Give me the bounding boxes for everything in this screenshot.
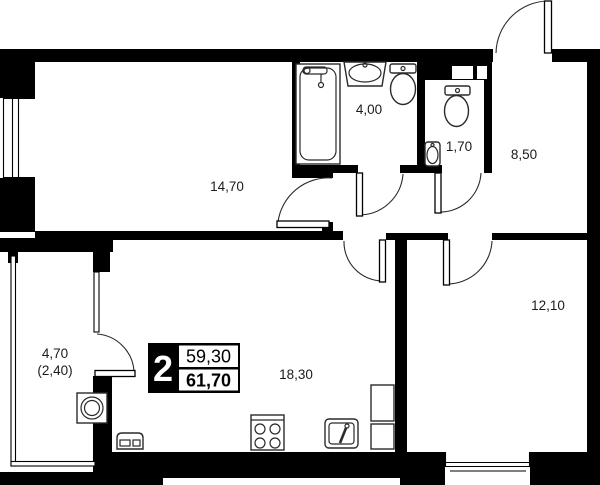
wc-toilet-icon xyxy=(445,86,471,127)
balcony-door xyxy=(95,334,135,377)
washing-machine-icon xyxy=(77,393,107,423)
total-area-label: 61,70 xyxy=(186,371,231,391)
entrance-door xyxy=(496,1,552,53)
wc-area-label: 1,70 xyxy=(446,139,472,154)
living-kitchen-area-label: 18,30 xyxy=(279,367,313,382)
rooms-count-label: 2 xyxy=(153,348,173,389)
window-room1 xyxy=(0,98,35,178)
balcony-reduced-area-label: (2,40) xyxy=(37,363,72,378)
balcony-glazing xyxy=(11,256,99,466)
bathroom-area-label: 4,00 xyxy=(356,102,382,117)
kitchen-sink-icon xyxy=(325,419,358,448)
vent-shafts xyxy=(452,66,487,79)
fridge-cabinet-icon xyxy=(371,385,394,449)
bedroom-area-label: 12,10 xyxy=(531,298,565,313)
bedroom-door xyxy=(444,240,493,285)
wc-door xyxy=(435,173,481,213)
wc-sink-icon xyxy=(425,142,440,166)
bathroom-door xyxy=(357,173,404,216)
bathroom-sink-icon xyxy=(344,62,386,86)
hallway-area-label: 8,50 xyxy=(511,147,537,162)
radiator-icon xyxy=(117,433,143,449)
bathtub-icon xyxy=(296,64,340,164)
floor-plan: 14,70 4,00 1,70 8,50 12,10 18,30 4,70 (2… xyxy=(0,0,600,485)
living-room-door xyxy=(344,240,386,282)
room1-area-label: 14,70 xyxy=(210,179,244,194)
stove-icon xyxy=(251,415,284,450)
apartment-badge: 2 59,30 61,70 xyxy=(148,343,240,393)
window-bedroom xyxy=(445,452,530,478)
living-area-label: 59,30 xyxy=(186,347,231,367)
floor-plan-canvas: 14,70 4,00 1,70 8,50 12,10 18,30 4,70 (2… xyxy=(0,0,600,485)
balcony-area-label: 4,70 xyxy=(42,346,68,361)
room1-door xyxy=(277,178,332,228)
bathroom-toilet-icon xyxy=(390,64,416,105)
